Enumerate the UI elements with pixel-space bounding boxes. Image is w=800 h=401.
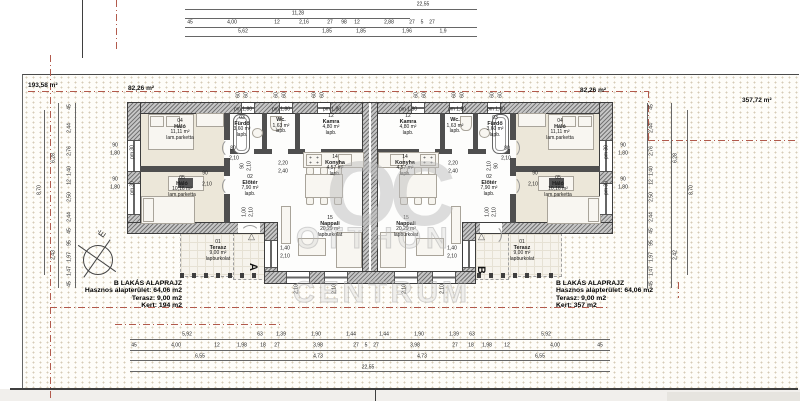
dim-label: pm 1,80 [399,108,417,113]
dim-label: 5,92 [182,333,192,338]
floor-plan-canvas: 193,58 m² 82,26 m² 82,26 m² 357,72 m² B … [0,0,800,401]
room-label: Wc.1,63 m²lapb. [273,118,290,135]
dim-label: 45 [187,21,193,26]
room-label: 14Konyha4,57 m²lapb. [395,155,415,177]
dim-label: 2,10 [229,157,239,162]
dim-label: 60 [283,92,288,98]
dim-label: 2,16 [299,21,309,26]
dim-label: 1,98 [237,344,247,349]
dim-label: 6,55 [535,355,545,360]
dim-label: 60 [237,92,242,98]
dim-label: 45 [597,344,603,349]
dim-label: 12 [68,179,73,185]
partition [468,149,486,154]
plot-area-label-right: 357,72 m² [742,97,772,104]
room-label: 15Nappali20,29 m²lapburkolat [318,216,342,238]
dim-label: 6,28 [52,153,57,163]
dim-label: 27 [373,344,379,349]
chair-icon [306,167,314,175]
dim-label: 45 [650,228,655,234]
dim-label: 90 [620,144,626,149]
room-label: 04Háló11,11 m²lam.parketta [166,119,194,141]
dim-label: 45 [68,228,73,234]
legend-usable-area: Hasznos alapterület: 64,06 m2 [556,287,726,294]
dimension-line [130,371,610,372]
dim-label: 3,98 [313,344,323,349]
room-label: 15Nappali20,29 m²lapburkolat [394,216,418,238]
tv-cabinet-icon [281,206,291,244]
legend-terrace: Terasz: 9,00 m2 [30,295,182,302]
partition-bedrooms-right [516,166,600,172]
dim-label: 3,98 [410,344,420,349]
dim-label: 12 [504,344,510,349]
room-label: 12Kamra4,80 m²lapb. [323,114,340,136]
dim-label: 1,80 [110,152,120,157]
dimension-line [44,110,45,275]
dim-label: 2,10 [280,255,290,260]
dim-label: 12 [354,21,360,26]
dim-label: 2,88 [384,21,394,26]
dim-label: 1,40 [447,247,457,252]
room-label: 03Fürdő3,60 m²lapb. [487,116,504,138]
dim-label: 45 [68,104,73,110]
room-label: 03Fürdő3,60 m²lapb. [234,116,251,138]
window [394,272,418,283]
dim-label: 1,9 [440,30,447,35]
door-arc [500,176,520,196]
dim-label: 8,70 [38,185,43,195]
dim-label: 90 [620,178,626,183]
dim-label: 27 [452,344,458,349]
dim-label: 5,62 [238,30,248,35]
dim-label: 60 [313,92,318,98]
dim-label: 8,70 [690,185,695,195]
dim-label: 1,47 [650,266,655,276]
dim-label: 1,85 [356,30,366,35]
dim-label: 2,44 [68,123,73,133]
dim-label: 60 [499,92,504,98]
dim-label: 1,97 [650,252,655,262]
dim-label: 27 [327,21,333,26]
chair-icon [400,197,408,205]
dim-label: pm 1,80 [272,108,290,113]
dim-label: 60 [275,92,280,98]
section-marker-a: A [247,263,259,271]
dim-label: pm 1,80 [323,108,341,113]
dim-label: 4,73 [313,355,323,360]
dim-label: 2,10 [248,161,253,171]
dim-label: 60 [415,92,420,98]
dim-label: 1,80 [618,152,628,157]
dim-label: 2,40 [448,170,458,175]
area-outside-plot-right [667,392,800,401]
property-line [116,0,117,50]
room-label: 02Előtér7,90 m²lapb. [242,175,259,197]
dim-label: 1,98 [482,344,492,349]
room-label: 01Terasz9,00 m²lapburkolat [206,240,230,262]
partition [224,194,230,223]
dimension-line [58,103,59,288]
dim-label: 6,55 [195,355,205,360]
dim-label: pm 1,80 [487,108,505,113]
terrace-door-right [463,240,475,268]
dim-label: 4,00 [227,21,237,26]
plot-division-line [375,388,376,401]
dim-label: 12 [214,344,220,349]
boundary-line-top [82,0,83,58]
room-label: Wc.1,63 m²lapb. [447,118,464,135]
dimension-line [185,9,477,10]
dim-label: 2,20 [278,162,288,167]
door-arc [482,225,502,245]
legend-title: B LAKÁS ALAPRAJZ [556,280,726,287]
plot-area-label-front-right: 82,26 m² [580,87,606,94]
dim-label: 1,40 [280,247,290,252]
dimension-line [185,18,410,19]
dim-label: 90 [202,172,208,177]
partition [224,113,230,140]
window [324,272,348,283]
window [432,272,456,283]
dimension-line [185,36,477,37]
dim-label: pm 30 [131,181,136,195]
dim-label: 2,50 [68,192,73,202]
chair-icon [306,197,314,205]
dim-label: 6,28 [674,153,679,163]
property-line [28,91,648,92]
dim-label: 2,76 [650,146,655,156]
dim-label: 2,40 [278,170,288,175]
dim-label: 1,80 [618,186,628,191]
partition [510,113,516,140]
dim-label: 1,80 [110,186,120,191]
dim-label: 90 [495,163,500,169]
dim-label: 5,92 [541,333,551,338]
partition [510,194,516,223]
section-marker-b: B [475,266,487,274]
legend-left: B LAKÁS ALAPRAJZ Hasznos alapterület: 64… [30,280,182,310]
dim-label: 63 [469,333,475,338]
dim-label: 95 [650,240,655,246]
partition [295,113,300,150]
partition-bedrooms-left [140,166,224,172]
room-label: 04Háló11,11 m²lam.parketta [546,119,574,141]
dim-label: 2,10 [333,284,338,294]
terrace-edge-right [477,273,560,278]
stove-icon [306,154,322,166]
dim-label: 1,40 [650,166,655,176]
dim-label: 1,96 [402,30,412,35]
plot-area-label-left: 193,58 m² [28,82,58,89]
plot-area-label-front-left: 82,26 m² [128,85,154,92]
chair-icon [414,167,422,175]
chair-icon [428,197,436,205]
dim-label: 2,76 [68,146,73,156]
chair-icon [428,167,436,175]
dim-label: pm 30 [605,145,610,159]
room-label: 01Terasz9,00 m²lapburkolat [510,240,534,262]
dim-label: 2,10 [441,284,446,294]
dim-label: 2,44 [650,212,655,222]
dim-label: 90 [112,178,118,183]
dim-label: 22,55 [362,366,375,371]
dim-label: 1,44 [346,333,356,338]
dim-label: 60 [321,92,326,98]
partition [440,113,445,150]
dim-label: 60 [453,92,458,98]
dim-label: 1,90 [311,333,321,338]
dim-label: 1,00 [243,207,248,217]
dim-label: 98 [341,21,347,26]
dimension-line [671,103,672,288]
dim-label: 2,50 [650,192,655,202]
dim-label: 4,00 [550,344,560,349]
room-label: 05Háló10,16 m²lam.parketta [168,176,196,198]
dim-label: 1,39 [449,333,459,338]
dim-label: 95 [68,240,73,246]
dimension-line [130,339,610,340]
dim-label: 63 [257,333,263,338]
dim-label: 27 [409,21,415,26]
pillow-icon [588,198,599,222]
dim-label: 2,10 [447,255,457,260]
stove-icon [420,154,436,166]
dim-label: 2,10 [403,284,408,294]
chair-icon [414,197,422,205]
dim-label: 2,10 [250,207,255,217]
wardrobe-icon [518,113,546,127]
legend-garden: Kert: 357 m2 [556,302,726,309]
legend-garden: Kert: 194 m2 [30,302,182,309]
dim-label: 2,10 [493,207,498,217]
legend-terrace: Terasz: 9,00 m2 [556,295,726,302]
dim-label: 1,44 [379,333,389,338]
dim-label: 1,40 [68,166,73,176]
dim-label: 2,42 [674,250,679,260]
legend-title: B LAKÁS ALAPRAJZ [30,280,182,287]
wardrobe-icon [196,113,224,127]
dim-label: 1,90 [414,333,424,338]
pillow-icon [150,116,164,127]
dim-label: 90 [532,172,538,177]
dim-label: pm 30 [131,145,136,159]
plot-boundary-south [10,388,798,390]
dim-label: 27 [353,344,359,349]
dim-label: 60 [423,92,428,98]
door-arc [222,176,242,196]
party-wall-gap [369,103,371,283]
dim-label: 2,10 [488,161,493,171]
dim-label: 1,97 [68,252,73,262]
property-line [50,55,51,401]
dim-label: 1,00 [486,207,491,217]
dim-label: 2,10 [501,157,511,162]
property-line [115,324,281,325]
dimension-line [75,103,76,288]
dim-label: 22,55 [417,3,430,8]
dim-label: 18 [260,344,266,349]
dim-label: 12 [274,21,280,26]
dim-label: 60 [245,92,250,98]
dim-label: 2,10 [528,183,538,188]
chair-icon [320,197,328,205]
tv-cabinet-icon [451,206,461,244]
legend-right: B LAKÁS ALAPRAJZ Hasznos alapterület: 64… [556,280,726,310]
coffee-table-icon [416,238,444,256]
dim-label: 12 [650,179,655,185]
washbasin-icon [252,128,263,138]
dim-label: 11,28 [292,12,304,17]
dim-label: 60 [491,92,496,98]
room-label: 02Előtér7,90 m²lapb. [481,175,498,197]
legend-usable-area: Hasznos alapterület: 64,06 m2 [30,287,182,294]
coffee-table-icon [298,238,326,256]
dim-label: 90 [241,163,246,169]
dining-table-icon [399,174,437,198]
dim-label: 5 [421,21,424,26]
dim-label: 1,39 [276,333,286,338]
dim-label: 2,20 [448,162,458,167]
dim-label: 1,85 [322,30,332,35]
dim-label: 4,73 [417,355,427,360]
dim-label: 45 [650,104,655,110]
pillow-icon [143,198,154,222]
dim-label: pm 1,80 [234,108,252,113]
dim-label: 80 [504,147,510,152]
dim-label: 2,44 [650,123,655,133]
dim-label: 27 [274,344,280,349]
dim-label: 45 [131,344,137,349]
room-label: 14Konyha4,57 m²lapb. [325,155,345,177]
pillow-icon [578,116,592,127]
partition [254,149,272,154]
partition [473,113,478,153]
dim-label: 90 [112,144,118,149]
terrace-edge-left [180,273,263,278]
window [286,272,310,283]
room-label: 12Kamra4,80 m²lapb. [400,114,417,136]
dim-label: 60 [461,92,466,98]
dimension-line [130,360,610,361]
dim-label: 2,10 [202,183,212,188]
dim-label: 2,44 [68,212,73,222]
room-label: 05Háló10,16 m²lam.parketta [544,176,572,198]
chair-icon [334,197,342,205]
terrace-door-left [265,240,277,268]
dining-table-icon [305,174,343,198]
dim-label: 2,10 [295,284,300,294]
entry-arrow-icon: △ [248,231,255,242]
dim-label: 18 [468,344,474,349]
dim-label: 80 [230,147,236,152]
dim-label: 4,00 [171,344,181,349]
dim-label: 1,47 [68,266,73,276]
dim-label: 27 [429,21,435,26]
entry-arrow-icon: △ [478,231,485,242]
dim-label: 2,43 [52,250,57,260]
dim-label: pm 1,80 [448,108,466,113]
dimension-line [130,350,610,351]
dim-label: 5 [365,344,368,349]
dim-label: pm 30 [605,181,610,195]
